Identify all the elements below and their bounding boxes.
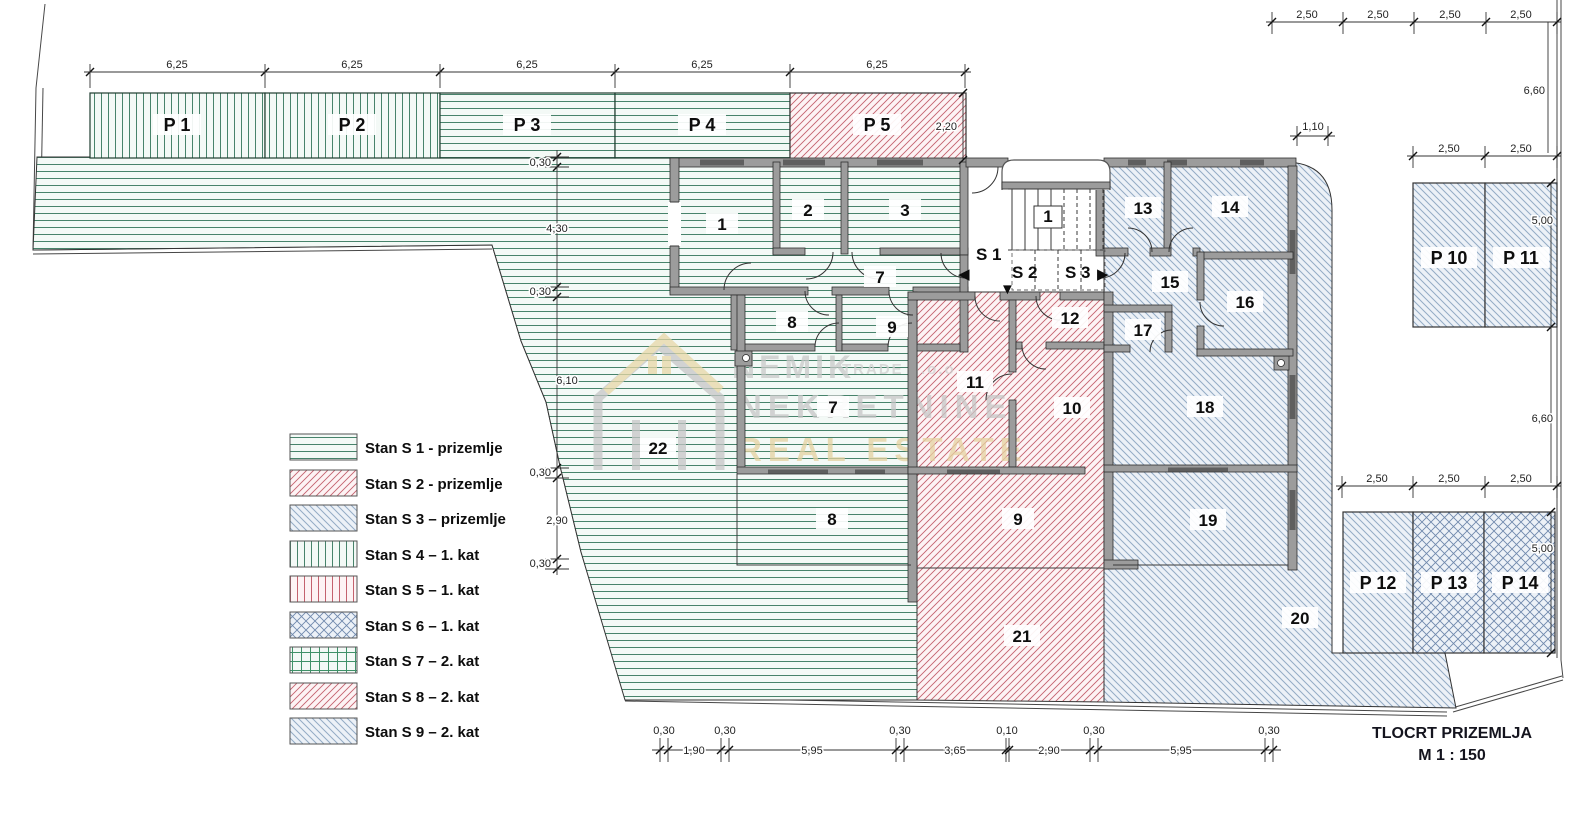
- room-label: 18: [1187, 396, 1223, 417]
- legend-item: Stan S 7 – 2. kat: [290, 647, 479, 673]
- parking-label: P 5: [853, 114, 901, 135]
- svg-text:0,30: 0,30: [714, 725, 735, 737]
- entrance-s3-label: S 3: [1065, 263, 1091, 282]
- svg-text:22: 22: [649, 439, 668, 458]
- room-label: 8: [776, 311, 808, 332]
- entrance-s1-arrow-icon: ◀: [958, 266, 970, 283]
- svg-text:8: 8: [827, 510, 836, 529]
- svg-text:6,25: 6,25: [166, 59, 187, 71]
- parking-label: P 14: [1492, 572, 1548, 593]
- svg-text:9: 9: [887, 318, 896, 337]
- svg-text:6,25: 6,25: [516, 59, 537, 71]
- svg-text:7: 7: [875, 268, 884, 287]
- svg-text:5,00: 5,00: [1532, 543, 1553, 555]
- legend: Stan S 1 - prizemlje Stan S 2 - prizemlj…: [290, 434, 506, 744]
- svg-text:P 10: P 10: [1431, 248, 1468, 268]
- svg-text:1,10: 1,10: [1302, 121, 1323, 133]
- svg-text:P 14: P 14: [1502, 573, 1539, 593]
- parking-label: P 3: [503, 114, 551, 135]
- room-label: 9: [1002, 508, 1034, 529]
- svg-text:2,20: 2,20: [936, 121, 957, 133]
- room-label: 7: [817, 396, 849, 417]
- parking-label: P 2: [328, 114, 376, 135]
- svg-text:Stan S 7 – 2. kat: Stan S 7 – 2. kat: [365, 653, 479, 670]
- room-label: 12: [1052, 307, 1088, 328]
- svg-text:2,50: 2,50: [1510, 473, 1531, 485]
- room-label: 14: [1212, 196, 1248, 217]
- dim-chain-topright: 2,50 2,50 2,50 2,50: [1266, 9, 1561, 34]
- watermark-line2: NEKRETNINE: [738, 388, 1013, 425]
- drawing-scale: M 1 : 150: [1418, 747, 1486, 764]
- svg-text:2,50: 2,50: [1510, 9, 1531, 21]
- svg-text:2,50: 2,50: [1510, 143, 1531, 155]
- legend-item: Stan S 6 – 1. kat: [290, 612, 479, 638]
- entrance-canopy: [1002, 160, 1110, 190]
- svg-text:21: 21: [1013, 627, 1032, 646]
- parking-label: P 13: [1421, 572, 1477, 593]
- floor-plan-page: NEMIK TRADE d.o.o. NEKRETNINE REAL ESTAT…: [0, 0, 1584, 813]
- drawing-title: TLOCRT PRIZEMLJA: [1372, 725, 1532, 742]
- svg-text:3: 3: [900, 201, 909, 220]
- svg-text:6,25: 6,25: [691, 59, 712, 71]
- svg-text:9: 9: [1013, 510, 1022, 529]
- svg-text:18: 18: [1196, 398, 1215, 417]
- room-label: 10: [1054, 397, 1090, 418]
- dim-right-upper: 6,60: [1524, 22, 1548, 153]
- dim-chain-p12: 2,50 2,50 2,50: [1336, 473, 1561, 498]
- svg-text:5,95: 5,95: [801, 745, 822, 757]
- watermark-brand-suffix: TRADE d.o.o.: [842, 361, 962, 378]
- svg-text:Stan S 3 – prizemlje: Stan S 3 – prizemlje: [365, 511, 506, 528]
- svg-text:Stan S 9 – 2. kat: Stan S 9 – 2. kat: [365, 724, 479, 741]
- room-label: 15: [1152, 271, 1188, 292]
- svg-text:4,30: 4,30: [546, 223, 567, 235]
- svg-text:1: 1: [1043, 207, 1052, 226]
- dim-chain-bottom: 0,30 1,90 0,30 5,95 0,30 3,65 0,10 2,90 …: [652, 725, 1281, 762]
- svg-text:Stan S 8 – 2. kat: Stan S 8 – 2. kat: [365, 689, 479, 706]
- parking-label: P 4: [678, 114, 726, 135]
- svg-text:0,30: 0,30: [1258, 725, 1279, 737]
- svg-text:16: 16: [1236, 293, 1255, 312]
- room-label: 21: [1004, 625, 1040, 646]
- entrance-s1-label: S 1: [976, 245, 1002, 264]
- svg-text:P 1: P 1: [164, 115, 191, 135]
- entrance-s2-arrow-icon: ▼: [1000, 281, 1015, 298]
- watermark-line3: REAL ESTATE: [738, 431, 1028, 468]
- svg-text:2,90: 2,90: [1038, 745, 1059, 757]
- title-block: TLOCRT PRIZEMLJA M 1 : 150: [1372, 725, 1532, 764]
- svg-text:6,60: 6,60: [1532, 413, 1553, 425]
- room-label: 20: [1282, 607, 1318, 628]
- svg-text:P 13: P 13: [1431, 573, 1468, 593]
- legend-item: Stan S 1 - prizemlje: [290, 434, 503, 460]
- legend-item: Stan S 5 – 1. kat: [290, 576, 479, 602]
- legend-item: Stan S 4 – 1. kat: [290, 541, 479, 567]
- svg-text:Stan S 5 – 1. kat: Stan S 5 – 1. kat: [365, 582, 479, 599]
- dim-right-lower: 6,60: [1532, 327, 1553, 483]
- svg-text:19: 19: [1199, 511, 1218, 530]
- svg-text:2,90: 2,90: [546, 515, 567, 527]
- room-label: 22: [640, 437, 676, 458]
- svg-text:12: 12: [1061, 309, 1080, 328]
- svg-text:P 12: P 12: [1360, 573, 1397, 593]
- svg-text:17: 17: [1134, 321, 1153, 340]
- parking-label: P 12: [1350, 572, 1406, 593]
- parking-label: P 10: [1421, 247, 1477, 268]
- dim-chain-p10: 2,50 2,50: [1407, 143, 1561, 168]
- svg-text:0,10: 0,10: [996, 725, 1017, 737]
- svg-text:0,30: 0,30: [1083, 725, 1104, 737]
- svg-text:6,10: 6,10: [556, 375, 577, 387]
- svg-text:2,50: 2,50: [1367, 9, 1388, 21]
- svg-text:P 3: P 3: [514, 115, 541, 135]
- svg-text:6,25: 6,25: [341, 59, 362, 71]
- svg-text:14: 14: [1221, 198, 1240, 217]
- svg-text:2,50: 2,50: [1438, 143, 1459, 155]
- legend-item: Stan S 3 – prizemlje: [290, 505, 506, 531]
- room-label: 17: [1125, 319, 1161, 340]
- svg-text:Stan S 2 - prizemlje: Stan S 2 - prizemlje: [365, 476, 503, 493]
- parking-label: P 11: [1493, 247, 1549, 268]
- svg-text:3,65: 3,65: [944, 745, 965, 757]
- room-label: 9: [876, 316, 908, 337]
- room-label: 16: [1227, 291, 1263, 312]
- room-label: 2: [792, 199, 824, 220]
- room-label: 8: [816, 508, 848, 529]
- svg-text:2,50: 2,50: [1439, 9, 1460, 21]
- svg-text:0,30: 0,30: [889, 725, 910, 737]
- room-label: 7: [864, 266, 896, 287]
- svg-text:5,95: 5,95: [1170, 745, 1191, 757]
- svg-text:13: 13: [1134, 199, 1153, 218]
- room-label: 3: [889, 199, 921, 220]
- dim-canopy: 1,10: [1290, 121, 1335, 146]
- svg-text:2,50: 2,50: [1366, 473, 1387, 485]
- entrance-s2-label: S 2: [1012, 263, 1038, 282]
- svg-text:5,00: 5,00: [1532, 215, 1553, 227]
- entrance-s3-arrow-icon: ▶: [1097, 266, 1109, 283]
- room-label: 11: [957, 371, 993, 392]
- svg-text:15: 15: [1161, 273, 1180, 292]
- svg-text:Stan S 6 – 1. kat: Stan S 6 – 1. kat: [365, 618, 479, 635]
- svg-text:0,30: 0,30: [530, 467, 551, 479]
- svg-text:6,25: 6,25: [866, 59, 887, 71]
- svg-text:P 4: P 4: [689, 115, 716, 135]
- svg-text:2: 2: [803, 201, 812, 220]
- svg-text:P 5: P 5: [864, 115, 891, 135]
- legend-item: Stan S 8 – 2. kat: [290, 683, 479, 709]
- dim-chain-top: 6,25 6,25 6,25 6,25 6,25: [84, 59, 971, 88]
- svg-text:Stan S 1 - prizemlje: Stan S 1 - prizemlje: [365, 440, 503, 457]
- room-label: 19: [1190, 509, 1226, 530]
- svg-text:8: 8: [787, 313, 796, 332]
- svg-text:2,50: 2,50: [1296, 9, 1317, 21]
- svg-text:0,30: 0,30: [530, 558, 551, 570]
- svg-text:1,90: 1,90: [683, 745, 704, 757]
- svg-text:7: 7: [828, 398, 837, 417]
- legend-item: Stan S 2 - prizemlje: [290, 470, 503, 496]
- svg-text:11: 11: [966, 373, 984, 392]
- svg-text:Stan S 4 – 1. kat: Stan S 4 – 1. kat: [365, 547, 479, 564]
- room-label: 1: [706, 213, 738, 234]
- region-apartment-s1: [33, 157, 966, 700]
- room-label: 13: [1125, 197, 1161, 218]
- legend-item: Stan S 9 – 2. kat: [290, 718, 479, 744]
- svg-text:6,60: 6,60: [1524, 85, 1545, 97]
- svg-text:20: 20: [1291, 609, 1310, 628]
- svg-text:1: 1: [717, 215, 726, 234]
- svg-text:0,30: 0,30: [530, 286, 551, 298]
- svg-text:0,30: 0,30: [653, 725, 674, 737]
- svg-text:P 2: P 2: [339, 115, 366, 135]
- floor-plan-svg: NEMIK TRADE d.o.o. NEKRETNINE REAL ESTAT…: [0, 0, 1584, 813]
- svg-text:2,50: 2,50: [1438, 473, 1459, 485]
- svg-text:0,30: 0,30: [530, 157, 551, 169]
- svg-text:10: 10: [1063, 399, 1082, 418]
- parking-label: P 1: [153, 114, 201, 135]
- stair-label: 1: [1034, 206, 1062, 228]
- svg-text:P 11: P 11: [1503, 248, 1539, 268]
